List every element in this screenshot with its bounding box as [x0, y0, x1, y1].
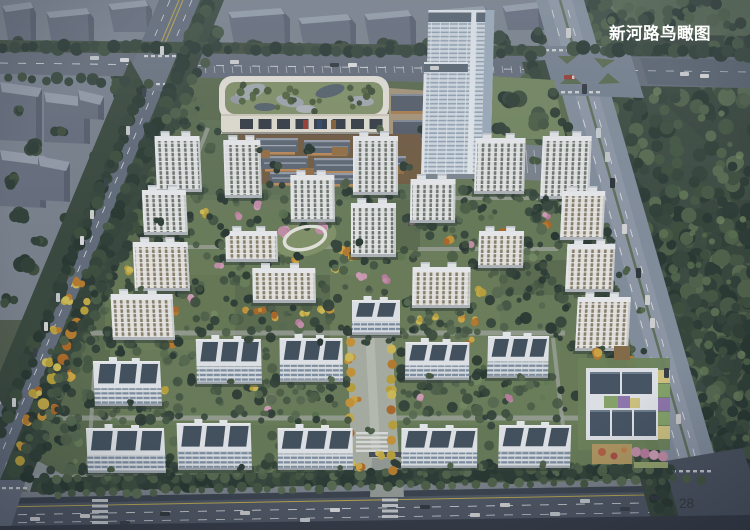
svg-text:新河路鸟瞰图: 新河路鸟瞰图 — [609, 23, 711, 43]
svg-text:28: 28 — [679, 496, 694, 511]
